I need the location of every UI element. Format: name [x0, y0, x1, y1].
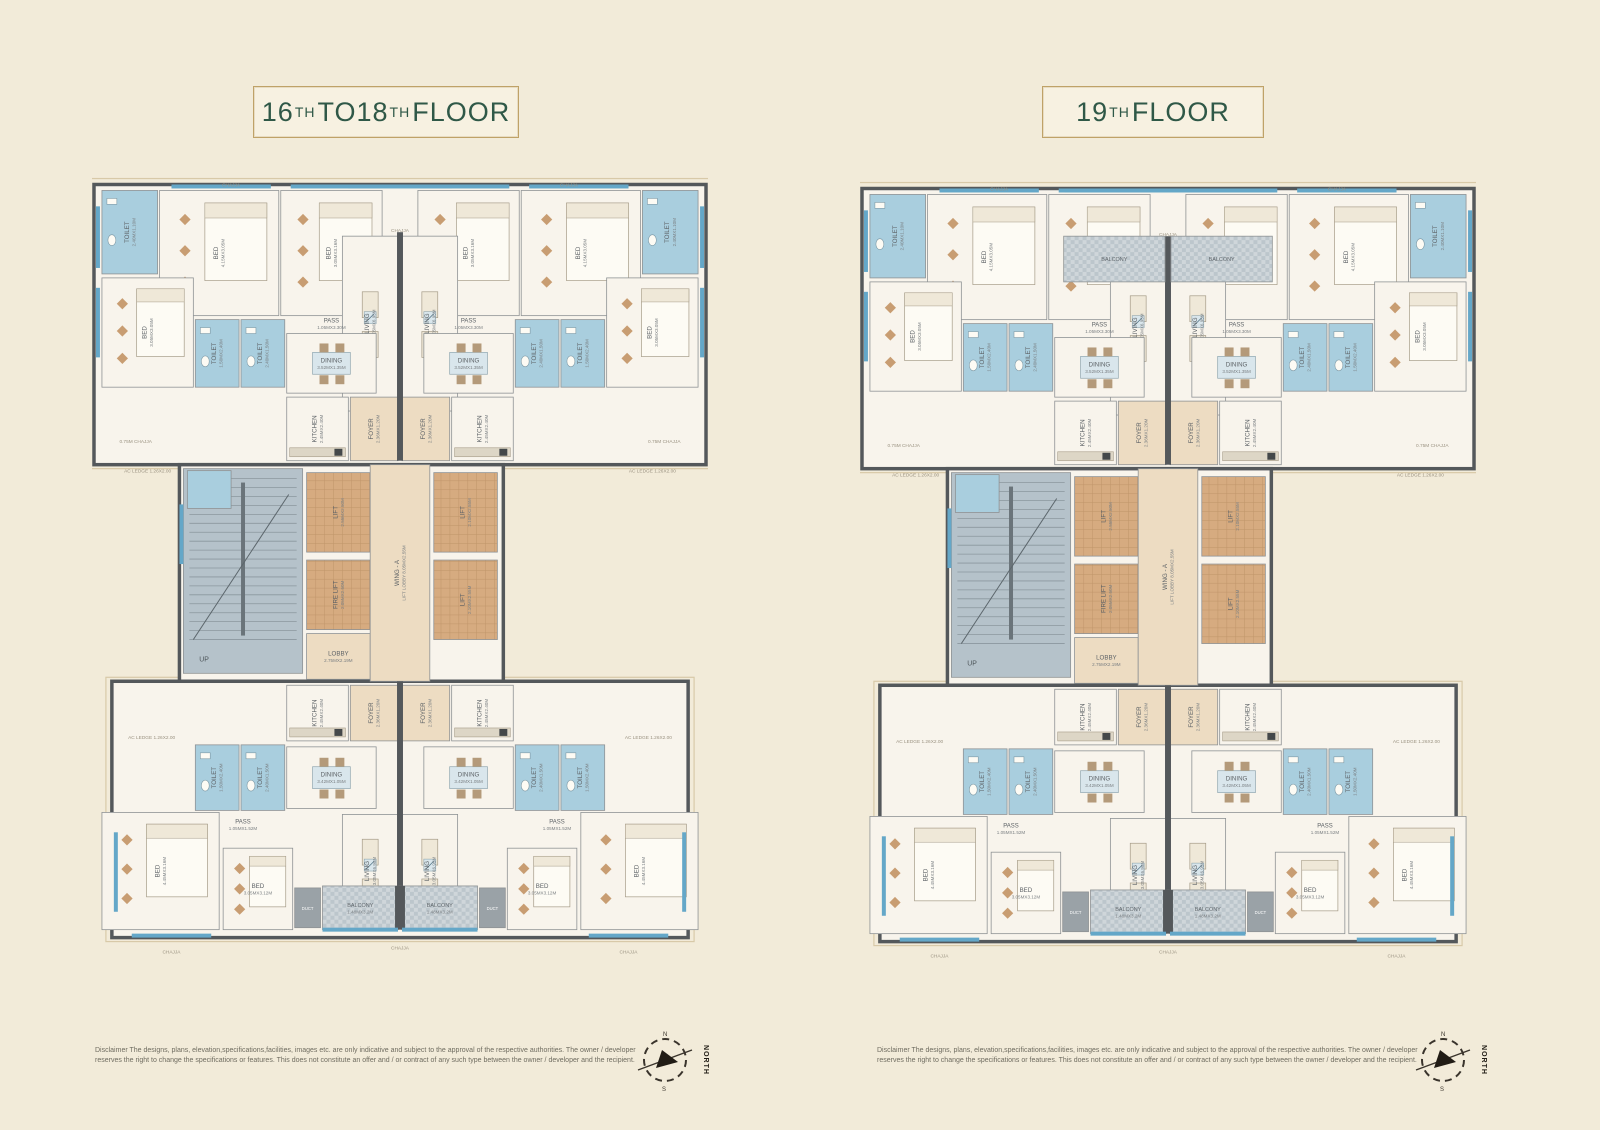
floor-title-19: 19TH FLOOR	[1042, 86, 1264, 138]
room-toilet: TOILET2.40MX1.50M	[1283, 324, 1327, 392]
room-win	[864, 292, 868, 362]
svg-text:DINING3.52MX1.35M: DINING3.52MX1.35M	[317, 357, 346, 370]
room-kitchen: KITCHEN2.45MX2.40M	[452, 397, 514, 461]
room-wall	[1165, 685, 1171, 890]
svg-text:DUCT: DUCT	[1255, 910, 1267, 915]
room-foyer: FOYER2.36MX1.20M	[402, 685, 450, 741]
svg-text:TOILET2.40MX1.10M: TOILET2.40MX1.10M	[664, 218, 677, 247]
compass-north-label: NORTH	[702, 1045, 709, 1075]
svg-text:TOILET1.50MX2.40M: TOILET1.50MX2.40M	[577, 763, 590, 792]
svg-text:S: S	[1440, 1087, 1444, 1093]
svg-text:CHAJJA: CHAJJA	[1328, 186, 1347, 192]
room-win	[700, 288, 704, 358]
room-toilet: TOILET1.50MX2.40M	[561, 745, 605, 811]
room-lift: LIFT2.55MX2.50M	[1075, 477, 1139, 556]
room-dining: DINING3.52MX1.35M	[287, 334, 376, 394]
room-win	[348, 184, 451, 188]
room-lobby: WING - ALIFT LOBBY 8.05MX2.55M	[370, 465, 430, 682]
svg-text:TOILET2.40MX1.50M: TOILET2.40MX1.50M	[531, 339, 544, 368]
room-lift: LIFT2.10MX2.55M	[1202, 564, 1266, 643]
svg-text:TOILET1.50MX2.40M: TOILET1.50MX2.40M	[577, 339, 590, 368]
svg-text:TOILET2.40MX1.10M: TOILET2.40MX1.10M	[1432, 222, 1445, 251]
svg-text:DINING3.52MX1.35M: DINING3.52MX1.35M	[1085, 361, 1114, 374]
room-kitchen: KITCHEN2.45MX2.40M	[287, 397, 349, 461]
disclaimer-text: Disclaimer The designs, plans, elevation…	[95, 1046, 640, 1066]
plan-text-0-75m-chajja: 0.75M CHAJJA	[119, 439, 152, 445]
svg-text:KITCHEN2.45MX2.40M: KITCHEN2.45MX2.40M	[1244, 419, 1257, 448]
room-dining: DINING3.52MX1.35M	[424, 334, 513, 394]
floor-title-16-18: 16TH TO 18TH FLOOR	[253, 86, 519, 138]
room-dining: DINING3.42MX1.05M	[287, 747, 376, 809]
room-win	[96, 288, 100, 358]
room-win	[179, 504, 183, 564]
room-win	[529, 184, 628, 188]
room-toilet: TOILET2.40MX1.10M	[642, 190, 698, 273]
svg-text:LOBBY2.75MX2.19M: LOBBY2.75MX2.19M	[1092, 654, 1121, 667]
room-duct: DUCT	[295, 888, 321, 928]
svg-text:BALCONY: BALCONY	[1101, 257, 1127, 263]
svg-text:AC LEDGE 1.26X2.00: AC LEDGE 1.26X2.00	[1393, 739, 1440, 745]
plan-text-0-75m-chajja: 0.75M CHAJJA	[648, 439, 681, 445]
room-kitchen: KITCHEN2.45MX2.40M	[1220, 689, 1282, 745]
compass-icon: N S NORTH	[632, 1024, 718, 1094]
room-win	[882, 836, 886, 915]
svg-text:CHAJJA: CHAJJA	[222, 182, 241, 188]
svg-text:CHAJJA: CHAJJA	[620, 950, 639, 956]
room-win	[864, 210, 868, 272]
svg-text:TOILET2.40MX1.50M: TOILET2.40MX1.50M	[1299, 767, 1312, 796]
room-toilet: TOILET2.40MX1.50M	[241, 745, 285, 811]
room-balcony: BALCONY	[1064, 236, 1165, 282]
svg-text:FOYER2.36MX1.20M: FOYER2.36MX1.20M	[420, 415, 433, 444]
svg-text:CHAJJA: CHAJJA	[1388, 954, 1407, 960]
svg-text:AC LEDGE 1.26X2.00: AC LEDGE 1.26X2.00	[896, 739, 943, 745]
svg-text:CHAJJA: CHAJJA	[163, 950, 182, 956]
room-toilet: TOILET2.40MX1.50M	[1009, 324, 1053, 392]
room-wall	[1165, 236, 1171, 465]
svg-text:TOILET1.50MX2.40M: TOILET1.50MX2.40M	[211, 763, 224, 792]
room-lift: FIRE LIFT2.05MX2.50M	[307, 560, 371, 630]
svg-text:DINING3.42MX1.05M: DINING3.42MX1.05M	[1085, 776, 1114, 789]
plan-text-chajja: CHAJJA	[560, 182, 579, 188]
svg-text:N: N	[663, 1032, 667, 1038]
svg-text:AC LEDGE 1.26X2.00: AC LEDGE 1.26X2.00	[625, 735, 672, 741]
plan-text-0-75m-chajja: 0.75M CHAJJA	[1416, 443, 1449, 449]
svg-text:TOILET2.40MX1.50M: TOILET2.40MX1.50M	[257, 763, 270, 792]
plan-text-chajja: CHAJJA	[990, 186, 1009, 192]
room-balcony: BALCONY1.48MX3.2M	[1091, 890, 1167, 934]
room-toilet: TOILET2.40MX1.10M	[1410, 194, 1466, 277]
svg-text:FIRE LIFT2.05MX2.50M: FIRE LIFT2.05MX2.50M	[332, 580, 345, 609]
room-win	[1357, 938, 1436, 942]
svg-text:TOILET1.50MX2.40M: TOILET1.50MX2.40M	[211, 339, 224, 368]
room-bed: BED3.05MX3.12M	[507, 848, 577, 929]
room-win	[589, 934, 668, 938]
room-balcony: BALCONY1.48MX3.2M	[323, 886, 399, 930]
svg-text:KITCHEN2.45MX2.40M: KITCHEN2.45MX2.40M	[1080, 419, 1093, 448]
room-duct: DUCT	[1247, 892, 1273, 932]
room-win	[1170, 932, 1246, 936]
room-wall	[395, 886, 405, 930]
room-toilet: TOILET2.40MX1.50M	[241, 320, 285, 388]
plan-text-ac-ledge-1-26x2-00: AC LEDGE 1.26X2.00	[1393, 739, 1440, 745]
room-win	[1468, 292, 1472, 362]
svg-text:TOILET1.50MX2.40M: TOILET1.50MX2.40M	[1345, 343, 1358, 372]
compass-north-label: NORTH	[1480, 1045, 1487, 1075]
room-toilet: TOILET2.40MX1.10M	[870, 194, 926, 277]
room-bed: BED3.05MX3.12M	[1275, 852, 1345, 933]
room-win	[1091, 932, 1167, 936]
svg-text:TOILET2.40MX1.50M: TOILET2.40MX1.50M	[1025, 343, 1038, 372]
room-kitchen: KITCHEN2.45MX2.40M	[1220, 401, 1282, 465]
plan-text-chajja: CHAJJA	[1388, 954, 1407, 960]
svg-text:FOYER2.36MX1.20M: FOYER2.36MX1.20M	[368, 699, 381, 728]
svg-text:AC LEDGE 1.26X2.00: AC LEDGE 1.26X2.00	[1397, 473, 1444, 479]
svg-text:KITCHEN2.45MX2.40M: KITCHEN2.45MX2.40M	[476, 699, 489, 728]
room-toilet: TOILET1.50MX2.40M	[561, 320, 605, 388]
svg-text:CHAJJA: CHAJJA	[990, 186, 1009, 192]
plan-text-chajja: CHAJJA	[620, 950, 639, 956]
plan-text-chajja: CHAJJA	[931, 954, 950, 960]
floor-plan-16-18: TOILET2.40MX1.10MTOILET2.40MX1.10MBED4.1…	[92, 176, 708, 962]
room-win	[900, 938, 979, 942]
room-toilet: TOILET2.40MX1.50M	[515, 745, 559, 811]
svg-text:BALCONY1.48MX3.2M: BALCONY1.48MX3.2M	[1115, 907, 1141, 919]
svg-text:0.75M CHAJJA: 0.75M CHAJJA	[887, 443, 920, 449]
svg-text:DINING3.42MX1.05M: DINING3.42MX1.05M	[454, 772, 483, 785]
room-lift: LIFT2.10MX2.55M	[1202, 477, 1266, 556]
svg-text:TOILET2.40MX1.10M: TOILET2.40MX1.10M	[892, 222, 905, 251]
svg-text:TOILET2.40MX1.50M: TOILET2.40MX1.50M	[1025, 767, 1038, 796]
svg-text:FOYER2.36MX1.20M: FOYER2.36MX1.20M	[1188, 419, 1201, 448]
room-dining: DINING3.42MX1.05M	[424, 747, 513, 809]
room-kitchen: KITCHEN2.45MX2.40M	[1055, 689, 1117, 745]
plan-text-ac-ledge-1-26x2-00: AC LEDGE 1.26X2.00	[1397, 473, 1444, 479]
svg-text:TOILET2.40MX1.50M: TOILET2.40MX1.50M	[531, 763, 544, 792]
room-kitchen: KITCHEN2.45MX2.40M	[452, 685, 514, 741]
svg-text:DUCT: DUCT	[302, 906, 314, 911]
room-dining: DINING3.42MX1.05M	[1192, 751, 1281, 813]
room-win	[323, 928, 399, 932]
svg-text:CHAJJA: CHAJJA	[1159, 950, 1178, 956]
room-win	[1297, 188, 1396, 192]
plan-text-chajja: CHAJJA	[222, 182, 241, 188]
room-dining: DINING3.52MX1.35M	[1192, 338, 1281, 398]
room-win	[402, 928, 478, 932]
room-toilet: TOILET1.50MX2.40M	[1329, 749, 1373, 815]
svg-text:BALCONY1.48MX3.2M: BALCONY1.48MX3.2M	[427, 903, 453, 915]
room-bed: BED4.45MX3.16M	[870, 816, 987, 933]
svg-text:UP: UP	[967, 660, 977, 667]
svg-text:DUCT: DUCT	[1070, 910, 1082, 915]
room-lobby: LOBBY2.75MX2.19M	[307, 634, 371, 680]
room-kitchen: KITCHEN2.45MX2.40M	[1055, 401, 1117, 465]
room-win	[1065, 188, 1272, 192]
room-kitchen: KITCHEN2.45MX2.40M	[287, 685, 349, 741]
plan-text-ac-ledge-1-26x2-00: AC LEDGE 1.26X2.00	[896, 739, 943, 745]
svg-text:KITCHEN2.45MX2.40M: KITCHEN2.45MX2.40M	[312, 415, 325, 444]
svg-text:DINING3.52MX1.35M: DINING3.52MX1.35M	[1222, 361, 1251, 374]
svg-text:DINING3.52MX1.35M: DINING3.52MX1.35M	[454, 357, 483, 370]
room-toilet: TOILET1.50MX2.40M	[1329, 324, 1373, 392]
plan-text-ac-ledge-1-26x2-00: AC LEDGE 1.26X2.00	[625, 735, 672, 741]
svg-text:TOILET2.40MX1.50M: TOILET2.40MX1.50M	[257, 339, 270, 368]
plan-text-chajja: CHAJJA	[1159, 950, 1178, 956]
room-lift: LIFT2.10MX2.55M	[434, 560, 498, 639]
room-bed: BED4.45MX3.16M	[102, 812, 219, 929]
svg-text:AC LEDGE 1.26X2.00: AC LEDGE 1.26X2.00	[128, 735, 175, 741]
room-bed: BED4.45MX3.16M	[1349, 816, 1466, 933]
plan-text-ac-ledge-1-26x2-00: AC LEDGE 1.26X2.00	[892, 473, 939, 479]
svg-text:BALCONY1.48MX3.2M: BALCONY1.48MX3.2M	[347, 903, 373, 915]
room-win	[1450, 836, 1454, 915]
room-win	[682, 832, 686, 911]
room-win	[132, 934, 211, 938]
svg-text:FOYER2.36MX1.20M: FOYER2.36MX1.20M	[1136, 703, 1149, 732]
room-foyer: FOYER2.36MX1.20M	[1118, 401, 1166, 465]
brochure-page: 16TH TO 18TH FLOOR TOILET2.40MX1.10MTOIL…	[0, 0, 1600, 1130]
svg-text:CHAJJA: CHAJJA	[931, 954, 950, 960]
svg-text:AC LEDGE 1.26X2.00: AC LEDGE 1.26X2.00	[124, 469, 171, 475]
room-toilet: TOILET2.40MX1.50M	[1283, 749, 1327, 815]
room-foyer: FOYER2.36MX1.20M	[350, 397, 398, 461]
svg-text:LOBBY2.75MX2.19M: LOBBY2.75MX2.19M	[324, 650, 353, 663]
room-toilet: TOILET1.50MX2.40M	[195, 320, 239, 388]
room-bed: BED3.05MX3.12M	[991, 852, 1061, 933]
svg-text:0.75M CHAJJA: 0.75M CHAJJA	[1416, 443, 1449, 449]
room-balcony: BALCONY	[1171, 236, 1272, 282]
plan-text-ac-ledge-1-26x2-00: AC LEDGE 1.26X2.00	[124, 469, 171, 475]
room-dining: DINING3.42MX1.05M	[1055, 751, 1144, 813]
room-lift: FIRE LIFT2.05MX2.50M	[1075, 564, 1139, 634]
svg-text:DINING3.42MX1.05M: DINING3.42MX1.05M	[1222, 776, 1251, 789]
floor-plan-19: TOILET2.40MX1.10MTOILET2.40MX1.10MBED4.1…	[860, 180, 1476, 966]
svg-text:TOILET2.40MX1.10M: TOILET2.40MX1.10M	[124, 218, 137, 247]
svg-text:DUCT: DUCT	[487, 906, 499, 911]
room-foyer: FOYER2.36MX1.20M	[1170, 689, 1218, 745]
room-toilet: TOILET1.50MX2.40M	[963, 749, 1007, 815]
room-bed: BED3.05MX3.12M	[223, 848, 293, 929]
plan-text-chajja: CHAJJA	[163, 950, 182, 956]
room-duct: DUCT	[1063, 892, 1089, 932]
svg-text:AC LEDGE 1.26X2.00: AC LEDGE 1.26X2.00	[629, 469, 676, 475]
svg-text:FIRE LIFT2.05MX2.50M: FIRE LIFT2.05MX2.50M	[1100, 584, 1113, 613]
room-dining: DINING3.52MX1.35M	[1055, 338, 1144, 398]
room-wall	[1163, 890, 1173, 934]
room-toilet: TOILET1.50MX2.40M	[963, 324, 1007, 392]
svg-text:0.75M CHAJJA: 0.75M CHAJJA	[119, 439, 152, 445]
svg-text:S: S	[662, 1087, 666, 1093]
room-bed: BED3.05MX3.05M	[870, 282, 961, 391]
room-toilet	[187, 471, 231, 509]
room-bed: BED3.05MX3.05M	[1375, 282, 1466, 391]
room-balcony: BALCONY1.48MX3.2M	[1170, 890, 1246, 934]
svg-text:TOILET1.50MX2.40M: TOILET1.50MX2.40M	[979, 767, 992, 796]
svg-text:AC LEDGE 1.26X2.00: AC LEDGE 1.26X2.00	[892, 473, 939, 479]
room-toilet: TOILET2.40MX1.10M	[102, 190, 158, 273]
room-bed: BED3.05MX3.05M	[102, 278, 193, 387]
room-foyer: FOYER2.36MX1.20M	[350, 685, 398, 741]
room-win	[947, 508, 951, 568]
svg-text:KITCHEN2.45MX2.40M: KITCHEN2.45MX2.40M	[312, 699, 325, 728]
plan-text-ac-ledge-1-26x2-00: AC LEDGE 1.26X2.00	[629, 469, 676, 475]
room-lift: LIFT2.10MX2.55M	[434, 473, 498, 552]
svg-text:FOYER2.36MX1.20M: FOYER2.36MX1.20M	[1136, 419, 1149, 448]
svg-text:FOYER2.36MX1.20M: FOYER2.36MX1.20M	[368, 415, 381, 444]
room-toilet: TOILET1.50MX2.40M	[195, 745, 239, 811]
plan-text-chajja: CHAJJA	[391, 946, 410, 952]
svg-text:CHAJJA: CHAJJA	[391, 228, 410, 234]
room-toilet	[955, 475, 999, 513]
plan-text-chajja: CHAJJA	[1328, 186, 1347, 192]
room-foyer: FOYER2.36MX1.20M	[1118, 689, 1166, 745]
svg-text:FOYER2.36MX1.20M: FOYER2.36MX1.20M	[420, 699, 433, 728]
disclaimer-text: Disclaimer The designs, plans, elevation…	[877, 1046, 1422, 1066]
room-toilet: TOILET2.40MX1.50M	[515, 320, 559, 388]
room-win	[700, 206, 704, 268]
room-win	[96, 206, 100, 268]
room-win	[1468, 210, 1472, 272]
svg-text:CHAJJA: CHAJJA	[560, 182, 579, 188]
room-foyer: FOYER2.36MX1.20M	[402, 397, 450, 461]
room-duct: DUCT	[479, 888, 505, 928]
svg-text:FOYER2.36MX1.20M: FOYER2.36MX1.20M	[1188, 703, 1201, 732]
room-wall	[397, 232, 403, 461]
svg-text:N: N	[1441, 1032, 1445, 1038]
room-foyer: FOYER2.36MX1.20M	[1170, 401, 1218, 465]
svg-text:TOILET1.50MX2.40M: TOILET1.50MX2.40M	[1345, 767, 1358, 796]
svg-text:TOILET2.40MX1.50M: TOILET2.40MX1.50M	[1299, 343, 1312, 372]
plan-text-chajja: CHAJJA	[391, 228, 410, 234]
room-lobby: LOBBY2.75MX2.19M	[1075, 638, 1139, 684]
svg-text:0.75M CHAJJA: 0.75M CHAJJA	[648, 439, 681, 445]
room-wall	[397, 681, 403, 886]
svg-text:TOILET1.50MX2.40M: TOILET1.50MX2.40M	[979, 343, 992, 372]
svg-text:KITCHEN2.45MX2.40M: KITCHEN2.45MX2.40M	[1080, 703, 1093, 732]
svg-text:BALCONY: BALCONY	[1209, 257, 1235, 263]
svg-text:CHAJJA: CHAJJA	[391, 946, 410, 952]
room-win	[114, 832, 118, 911]
room-toilet: TOILET2.40MX1.50M	[1009, 749, 1053, 815]
svg-text:KITCHEN2.45MX2.40M: KITCHEN2.45MX2.40M	[476, 415, 489, 444]
svg-text:KITCHEN2.45MX2.40M: KITCHEN2.45MX2.40M	[1244, 703, 1257, 732]
svg-text:DINING3.42MX1.05M: DINING3.42MX1.05M	[317, 772, 346, 785]
svg-text:UP: UP	[199, 656, 209, 663]
svg-text:BALCONY1.48MX3.2M: BALCONY1.48MX3.2M	[1195, 907, 1221, 919]
room-bed: BED4.45MX3.16M	[581, 812, 698, 929]
plan-text-ac-ledge-1-26x2-00: AC LEDGE 1.26X2.00	[128, 735, 175, 741]
compass-icon: N S NORTH	[1410, 1024, 1496, 1094]
room-balcony: BALCONY1.48MX3.2M	[402, 886, 478, 930]
room-lift: LIFT2.55MX2.50M	[307, 473, 371, 552]
room-lobby: WING - ALIFT LOBBY 8.05MX2.55M	[1138, 469, 1198, 686]
plan-text-0-75m-chajja: 0.75M CHAJJA	[887, 443, 920, 449]
room-bed: BED3.05MX3.05M	[607, 278, 698, 387]
